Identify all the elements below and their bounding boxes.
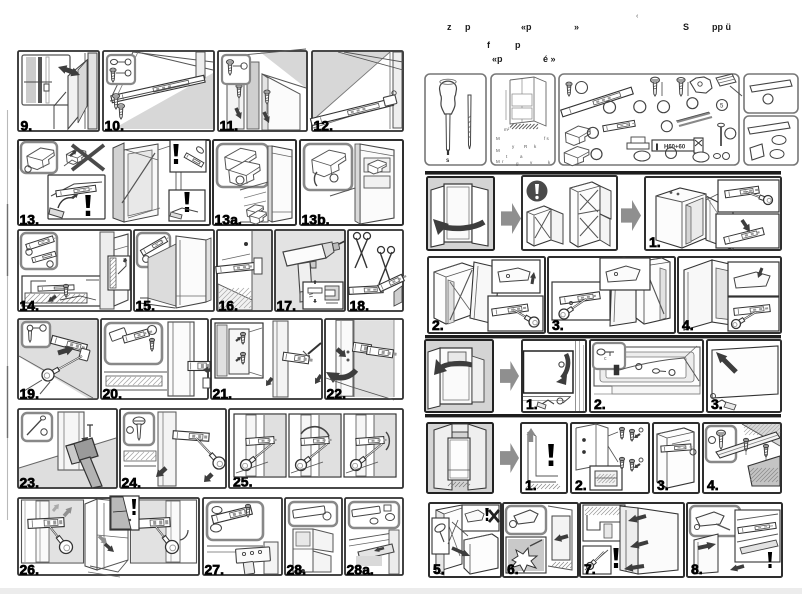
svg-text:13.: 13. [20,212,39,228]
svg-text:4.: 4. [682,317,694,333]
svg-text:4.: 4. [707,477,719,493]
svg-text:2.: 2. [594,396,606,412]
svg-text:M: M [496,159,500,164]
svg-text:«p: «p [521,22,532,32]
svg-text:7.: 7. [584,561,596,577]
svg-text:«p: «p [492,54,503,64]
svg-text:13a.: 13a. [215,212,242,228]
svg-text:9.: 9. [21,118,33,134]
svg-text:é »: é » [543,54,556,64]
svg-text:14.: 14. [20,298,39,314]
svg-text:p: p [515,40,521,50]
svg-text:10.: 10. [105,118,124,134]
svg-text:8.: 8. [691,561,703,577]
svg-text:18.: 18. [350,298,369,314]
svg-text:15.: 15. [136,298,155,314]
svg-text:3.: 3. [657,477,669,493]
svg-text:M: M [496,136,500,141]
svg-text:28a.: 28a. [347,562,374,578]
svg-text:»: » [574,22,579,32]
svg-text:5.: 5. [433,561,445,577]
svg-text:pp ü: pp ü [712,22,731,32]
svg-text:22.: 22. [327,386,346,402]
svg-text:21.: 21. [213,386,232,402]
svg-text:1.: 1. [649,234,661,250]
svg-text:16.: 16. [219,298,238,314]
svg-text:▌: ▌ [656,144,660,151]
svg-text:23.: 23. [20,475,39,491]
svg-text:2.: 2. [575,477,587,493]
svg-text:17.: 17. [277,298,296,314]
svg-text:26.: 26. [20,562,39,578]
svg-text:11.: 11. [220,118,239,134]
svg-text:13b.: 13b. [302,212,330,228]
svg-text:m²: m² [504,127,510,132]
svg-text:20.: 20. [103,386,122,402]
svg-text:3.: 3. [711,396,723,412]
svg-text:2.: 2. [432,317,444,333]
svg-text:12.: 12. [314,118,333,134]
svg-text:28.: 28. [287,562,306,578]
svg-text:6.: 6. [507,561,519,577]
svg-text:19.: 19. [20,386,39,402]
svg-text:p: p [465,22,471,32]
svg-text:27.: 27. [205,562,224,578]
svg-text:24.: 24. [122,475,141,491]
svg-text:1.: 1. [526,396,538,412]
svg-text:3.: 3. [552,317,564,333]
svg-text:f s: f s [544,136,550,141]
svg-text:1.: 1. [525,477,537,493]
svg-text:M: M [496,148,500,153]
svg-text:S: S [683,22,689,32]
svg-text:z: z [447,22,452,32]
